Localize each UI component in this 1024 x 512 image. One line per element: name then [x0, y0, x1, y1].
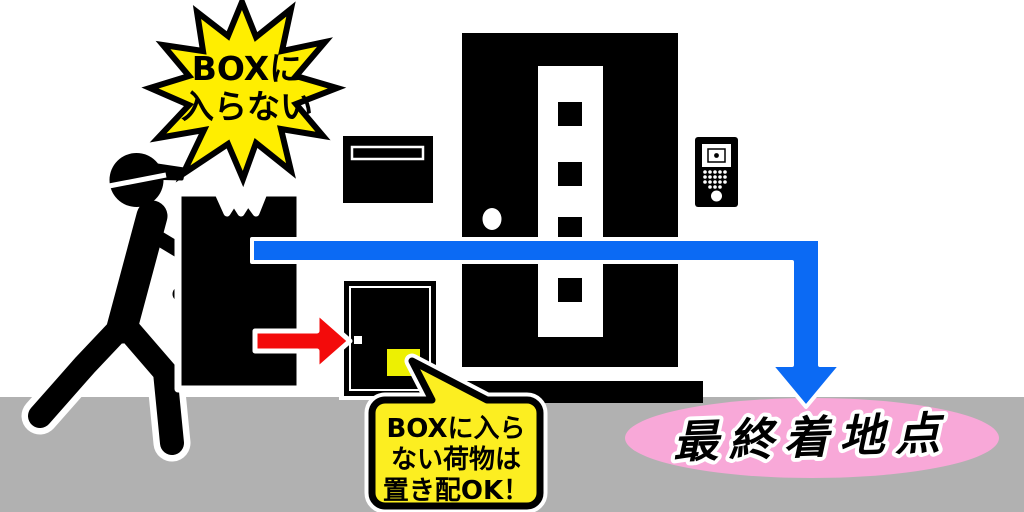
intercom-camera-lens — [714, 153, 719, 158]
speech-bubble-line2: ない荷物は — [391, 445, 521, 475]
destination-label: 最終着地点 — [671, 407, 959, 469]
scene: 最終着地点 — [0, 0, 1024, 512]
illustration-canvas: 最終着地点 — [0, 0, 1024, 512]
door-window-square-4 — [558, 278, 582, 302]
carried-box-icon — [178, 193, 300, 389]
destination-spot: 最終着地点 — [625, 398, 999, 478]
building-door-icon — [448, 33, 703, 403]
speech-bubble-line3: 置き配OK！ — [383, 476, 529, 506]
speech-bubble-line1: BOXに入ら — [386, 414, 525, 444]
intercom-icon — [695, 137, 738, 207]
front-door-knob — [354, 336, 362, 344]
delivery-box-slot — [352, 147, 423, 159]
door-window-square-2 — [558, 162, 582, 186]
intercom-button — [711, 191, 722, 202]
delivery-box-icon — [343, 136, 433, 203]
starburst-label-line1: BOXに — [192, 49, 302, 88]
starburst-label-line2: 入らない — [181, 87, 313, 126]
door-window-square-1 — [558, 102, 582, 126]
door-knob — [483, 208, 502, 230]
